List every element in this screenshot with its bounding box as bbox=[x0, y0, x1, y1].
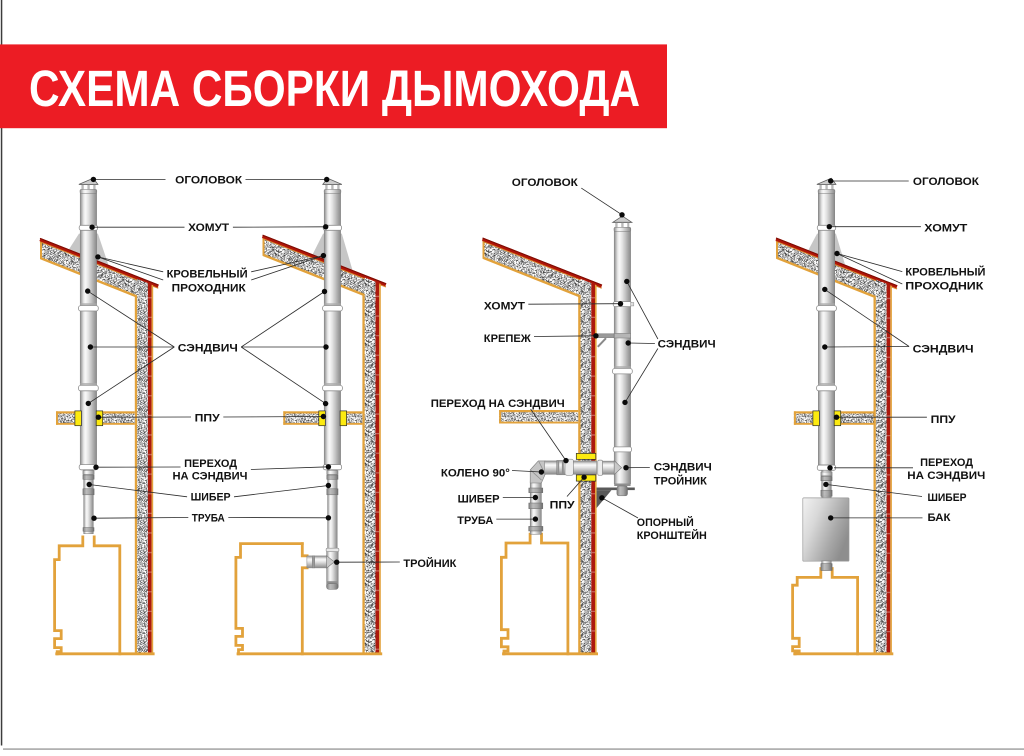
svg-text:СЭНДВИЧ: СЭНДВИЧ bbox=[178, 343, 238, 355]
svg-text:ХОМУТ: ХОМУТ bbox=[484, 300, 525, 312]
svg-text:ХОМУТ: ХОМУТ bbox=[188, 222, 229, 234]
svg-text:ППУ: ППУ bbox=[550, 500, 576, 512]
svg-text:КРОНШТЕЙН: КРОНШТЕЙН bbox=[637, 529, 707, 542]
svg-text:НА СЭНДВИЧ: НА СЭНДВИЧ bbox=[907, 470, 985, 482]
svg-text:ОГОЛОВОК: ОГОЛОВОК bbox=[175, 175, 242, 187]
svg-text:КРЕПЕЖ: КРЕПЕЖ bbox=[484, 333, 532, 345]
svg-text:СХЕМА СБОРКИ ДЫМОХОДА: СХЕМА СБОРКИ ДЫМОХОДА bbox=[29, 60, 640, 117]
svg-text:ОГОЛОВОК: ОГОЛОВОК bbox=[512, 177, 578, 189]
svg-text:НА СЭНДВИЧ: НА СЭНДВИЧ bbox=[173, 470, 248, 482]
svg-text:СЭНДВИЧ: СЭНДВИЧ bbox=[658, 339, 716, 351]
svg-text:КРОВЕЛЬНЫЙ: КРОВЕЛЬНЫЙ bbox=[167, 267, 248, 280]
svg-text:ПЕРЕХОД НА СЭНДВИЧ: ПЕРЕХОД НА СЭНДВИЧ bbox=[431, 398, 565, 410]
svg-text:ТРУБА: ТРУБА bbox=[457, 515, 493, 527]
svg-text:ХОМУТ: ХОМУТ bbox=[924, 222, 967, 234]
svg-text:КОЛЕНО 90°: КОЛЕНО 90° bbox=[441, 468, 510, 480]
svg-text:ППУ: ППУ bbox=[195, 413, 221, 425]
svg-text:ШИБЕР: ШИБЕР bbox=[458, 493, 500, 505]
svg-text:ТРУБА: ТРУБА bbox=[192, 512, 225, 524]
svg-text:ППУ: ППУ bbox=[931, 414, 957, 426]
svg-text:КРОВЕЛЬНЫЙ: КРОВЕЛЬНЫЙ bbox=[905, 266, 985, 279]
svg-text:ТРОЙНИК: ТРОЙНИК bbox=[403, 557, 456, 570]
svg-text:ТРОЙНИК: ТРОЙНИК bbox=[654, 475, 707, 488]
svg-text:ШИБЕР: ШИБЕР bbox=[191, 491, 231, 503]
svg-text:ОГОЛОВОК: ОГОЛОВОК bbox=[913, 176, 979, 188]
svg-text:СЭНДВИЧ: СЭНДВИЧ bbox=[654, 462, 712, 474]
svg-text:ПЕРЕХОД: ПЕРЕХОД bbox=[184, 458, 237, 470]
svg-text:ПЕРЕХОД: ПЕРЕХОД bbox=[920, 457, 973, 469]
svg-text:СЭНДВИЧ: СЭНДВИЧ bbox=[913, 343, 974, 355]
svg-text:ПРОХОДНИК: ПРОХОДНИК bbox=[905, 280, 983, 292]
svg-text:ПРОХОДНИК: ПРОХОДНИК bbox=[172, 283, 246, 295]
svg-text:ШИБЕР: ШИБЕР bbox=[928, 492, 967, 504]
svg-text:ОПОРНЫЙ: ОПОРНЫЙ bbox=[637, 516, 694, 529]
svg-text:БАК: БАК bbox=[928, 512, 951, 524]
